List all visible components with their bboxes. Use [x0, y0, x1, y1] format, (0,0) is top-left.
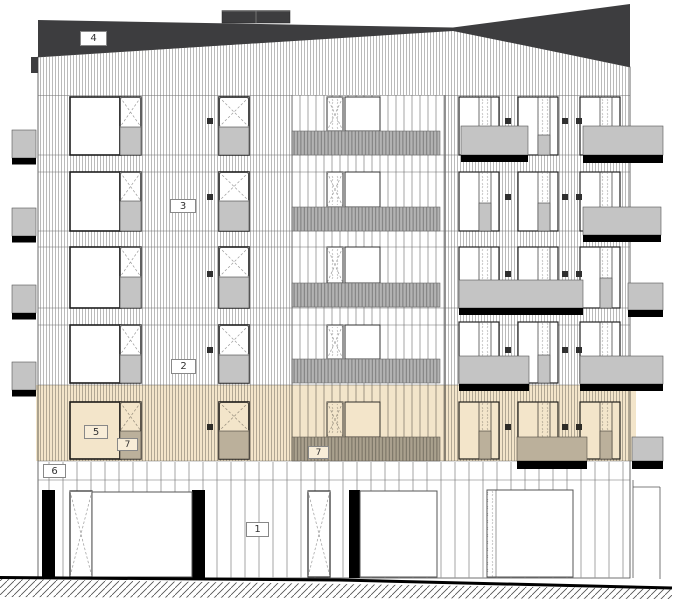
- callout-7a: 7: [117, 438, 138, 451]
- elevation-drawing: 4 3 2 5 7 7 6 1: [0, 0, 673, 600]
- ground-floor: [42, 480, 660, 579]
- elevation-svg: [0, 0, 673, 600]
- callout-4: 4: [80, 31, 107, 46]
- callout-5: 5: [84, 425, 108, 439]
- corner-balcony: [632, 437, 663, 469]
- callout-1: 1: [246, 522, 269, 537]
- callout-7b: 7: [308, 446, 329, 459]
- callout-2: 2: [171, 359, 196, 374]
- callout-6: 6: [43, 464, 66, 478]
- ground-terrain: [0, 578, 672, 600]
- callout-3: 3: [170, 199, 196, 213]
